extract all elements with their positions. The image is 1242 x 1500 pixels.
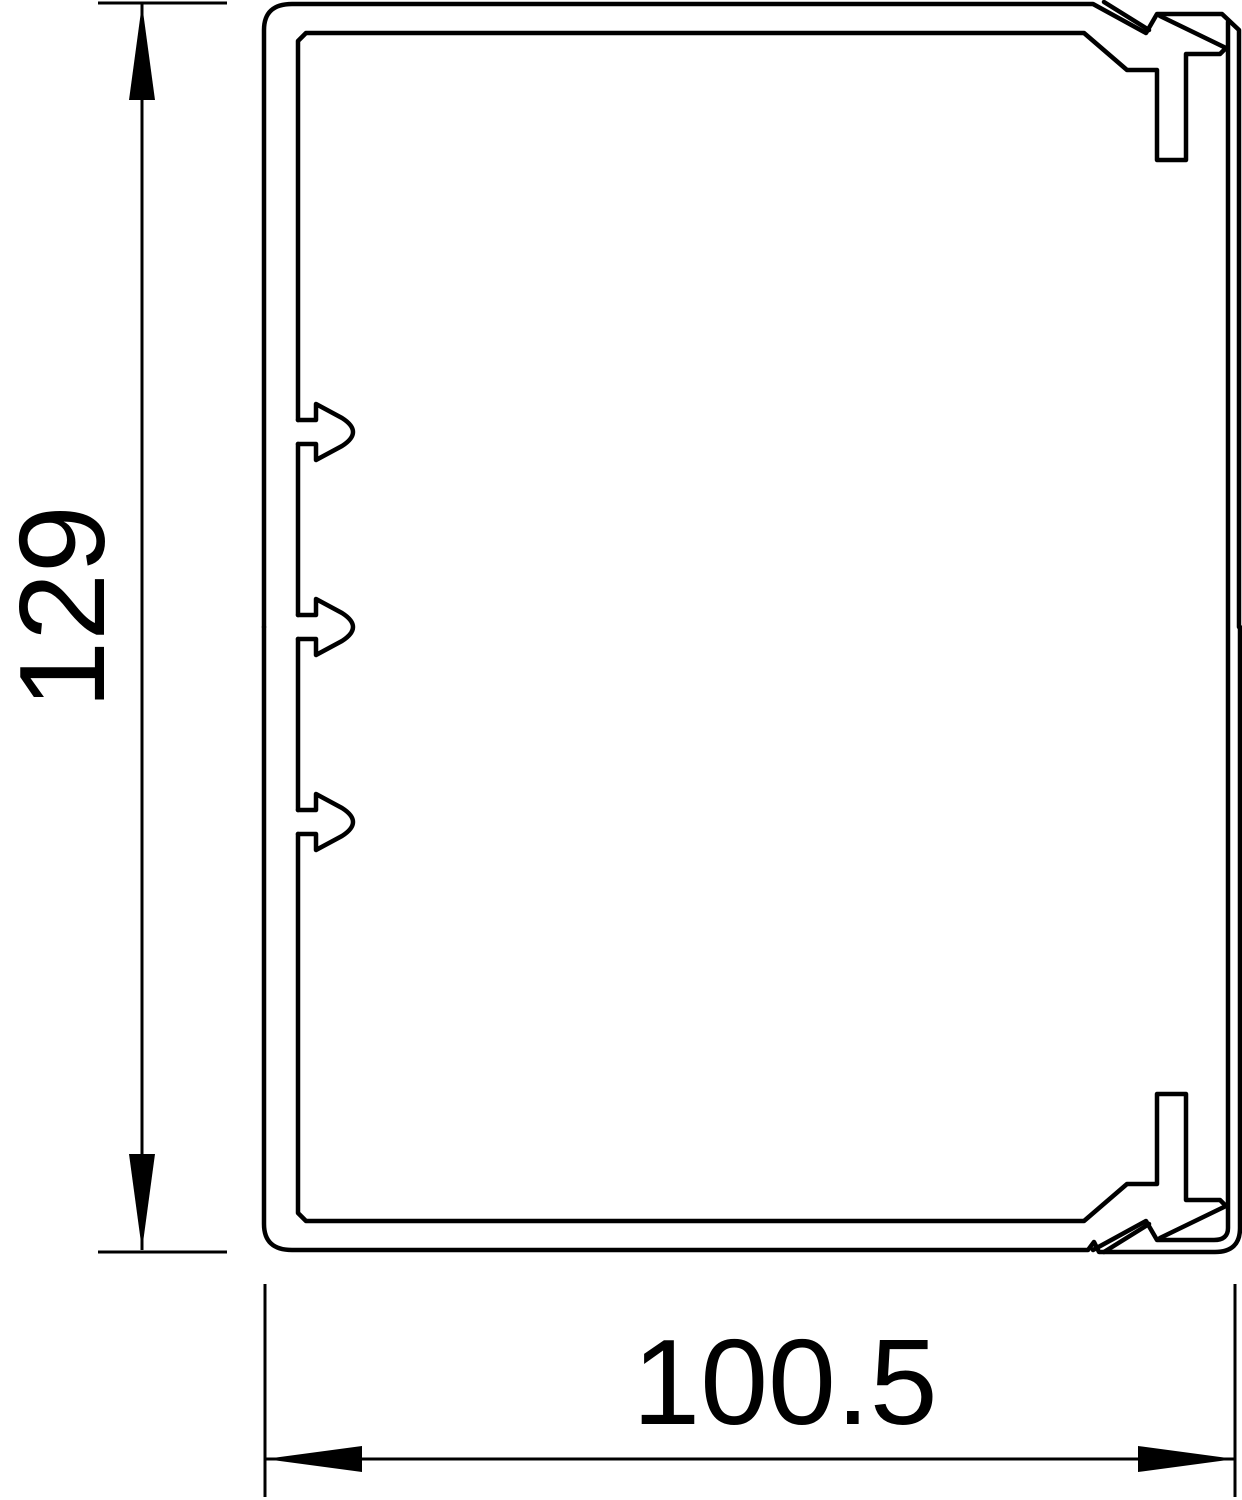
width-arrow-left-icon bbox=[265, 1446, 362, 1472]
drawing-canvas: 129 100.5 bbox=[0, 0, 1242, 1500]
dimension-height: 129 bbox=[0, 3, 227, 1252]
outer-contour-top bbox=[264, 4, 1239, 627]
inner-contour-top-hook bbox=[298, 16, 1226, 420]
left-latch-bottom bbox=[298, 794, 353, 850]
left-latch-top bbox=[298, 404, 353, 460]
width-arrow-right-icon bbox=[1138, 1446, 1235, 1472]
lid-inner-wall bbox=[1093, 22, 1228, 1250]
height-arrow-up-icon bbox=[129, 4, 155, 100]
height-dimension-label: 129 bbox=[0, 505, 130, 709]
width-dimension-label: 100.5 bbox=[632, 1314, 937, 1450]
dimension-width: 100.5 bbox=[265, 1284, 1235, 1497]
outer-contour-bottom bbox=[264, 627, 1240, 1252]
profile-outline bbox=[264, 2, 1240, 1252]
left-latch-middle bbox=[298, 599, 353, 655]
technical-drawing: 129 100.5 bbox=[0, 0, 1242, 1500]
height-arrow-down-icon bbox=[129, 1154, 155, 1250]
inner-contour-bottom-hook bbox=[298, 834, 1226, 1238]
